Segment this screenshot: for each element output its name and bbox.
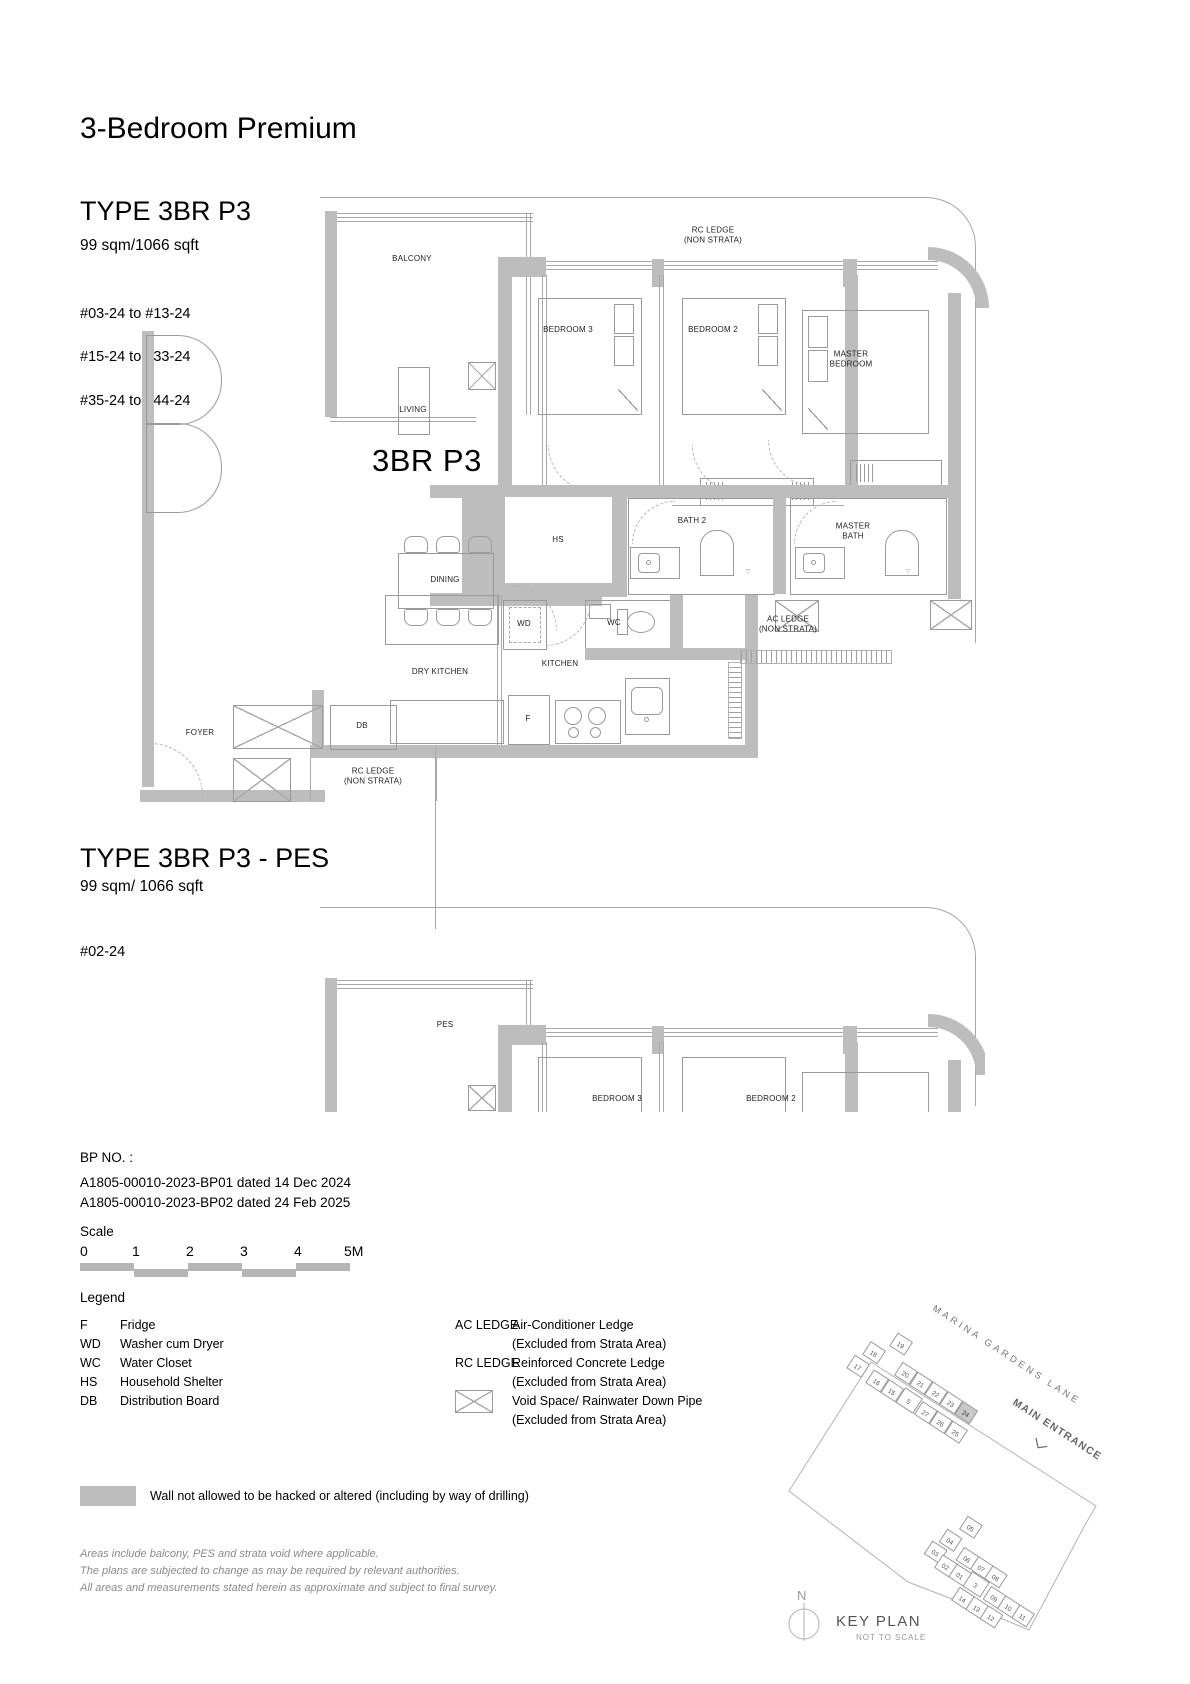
disclaimer-line: Areas include balcony, PES and strata vo… [80, 1548, 379, 1560]
room-label-living: LIVING [399, 405, 426, 415]
wall-segment [498, 257, 512, 497]
scale-tick: 1 [132, 1243, 140, 1259]
floor-trap-icon: ▽ [746, 569, 751, 577]
window-line [526, 980, 527, 1028]
page-title: 3-Bedroom Premium [80, 112, 357, 146]
wall-segment [498, 1025, 512, 1112]
blanket-fold [762, 389, 782, 411]
toilet-shape [627, 611, 655, 633]
chair-shape [404, 536, 428, 553]
room-label-rc-ledge-bottom: RC LEDGE (NON STRATA) [344, 767, 402, 788]
scale-tick: 5M [344, 1243, 363, 1259]
blanket-fold [618, 389, 638, 411]
counter-shape [390, 700, 504, 744]
scale-label: Scale [80, 1224, 114, 1239]
floor-plan-page: 3-Bedroom Premium TYPE 3BR P3 99 sqm/106… [0, 0, 1190, 1684]
wardrobe-hangers [856, 464, 874, 482]
legend-abbr: AC LEDGE [455, 1318, 518, 1332]
pillow-shape [758, 336, 778, 366]
window-line [546, 1036, 938, 1037]
hob-burner [590, 727, 601, 738]
partition-line [663, 1042, 664, 1112]
room-label-bedroom3: BEDROOM 3 [592, 1094, 642, 1104]
pillow-shape [808, 316, 828, 348]
floor-trap-icon: ▽ [906, 569, 911, 577]
wall-segment [773, 490, 786, 594]
chair-shape [468, 536, 492, 553]
blanket-fold [808, 408, 828, 430]
wall-segment [325, 978, 337, 1112]
bp-line: A1805-00010-2023-BP01 dated 14 Dec 2024 [80, 1175, 351, 1190]
basin-shape [589, 604, 611, 619]
chair-shape [404, 609, 428, 626]
legend-abbr: DB [80, 1394, 97, 1408]
void-space-icon [468, 362, 496, 390]
partition-line [663, 275, 664, 492]
shower-shape [885, 530, 919, 576]
window-line [337, 217, 533, 218]
disclaimer-line: All areas and measurements stated herein… [80, 1582, 497, 1594]
ledge-line [310, 758, 311, 801]
hob-burner [568, 727, 579, 738]
wall-note: Wall not allowed to be hacked or altered… [150, 1489, 529, 1503]
ledge-line [436, 758, 437, 801]
hob-shape [555, 700, 621, 744]
keyplan-title: KEY PLAN [836, 1613, 921, 1630]
scale-tick: 0 [80, 1243, 88, 1259]
tv-console-shape [398, 367, 430, 435]
void-space-icon [455, 1390, 493, 1413]
sofa-shape [146, 423, 222, 513]
window-line [546, 261, 938, 262]
partition-line [659, 275, 660, 492]
legend-abbr: WC [80, 1356, 101, 1370]
legend-abbr: RC LEDGE [455, 1356, 519, 1370]
legend-note: (Excluded from Strata Area) [512, 1375, 666, 1389]
type2-heading: TYPE 3BR P3 - PES [80, 843, 329, 874]
sink-drain [644, 717, 649, 722]
pillow-shape [614, 336, 634, 366]
bp-line: A1805-00010-2023-BP02 dated 24 Feb 2025 [80, 1195, 350, 1210]
void-space-icon [233, 705, 323, 749]
type2-units: #02-24 [80, 920, 125, 985]
wall-swatch [80, 1486, 136, 1506]
legend-desc: Water Closet [120, 1356, 192, 1370]
legend-desc: Washer cum Dryer [120, 1337, 224, 1351]
key-plan: MARINA GARDENS LANE MAIN ENTRANCE 19 18 … [740, 1222, 1190, 1642]
window-line [337, 988, 533, 989]
legend-note: (Excluded from Strata Area) [512, 1337, 666, 1351]
window-line [337, 221, 533, 222]
ac-ledge-hatch [728, 662, 742, 739]
void-space-icon [930, 600, 972, 630]
room-label-kitchen: KITCHEN [542, 659, 579, 669]
room-label-master-bedroom: MASTER BEDROOM [830, 350, 873, 371]
unit-block: 05 [960, 1516, 982, 1538]
street-label: MARINA GARDENS LANE [930, 1303, 1082, 1407]
legend-abbr: HS [80, 1375, 97, 1389]
window-line [530, 213, 531, 415]
window-line [526, 213, 527, 415]
unit-block: 17 [847, 1355, 869, 1377]
sink-drain [811, 560, 816, 565]
pillow-shape [758, 304, 778, 334]
legend-desc: Air-Conditioner Ledge [512, 1318, 634, 1332]
bp-label: BP NO. : [80, 1150, 133, 1165]
legend-desc: Distribution Board [120, 1394, 219, 1408]
scale-bar-segment [188, 1263, 242, 1271]
room-label-rc-ledge-top: RC LEDGE (NON STRATA) [684, 226, 742, 247]
floor-plan-3br-p3: BALCONY RC LEDGE (NON STRATA) [140, 195, 985, 807]
sofa-shape [146, 335, 222, 425]
unit-range: #02-24 [80, 942, 125, 964]
legend-abbr: WD [80, 1337, 101, 1351]
legend-desc: Void Space/ Rainwater Down Pipe [512, 1394, 702, 1408]
scale-bar-segment [296, 1263, 350, 1271]
window-line [546, 269, 938, 270]
window-line [530, 980, 531, 1028]
room-label-foyer: FOYER [186, 728, 215, 738]
shower-shape [700, 530, 734, 576]
scale-bar-segment [242, 1269, 296, 1277]
wall-segment [745, 595, 758, 753]
unit-block: 18 [863, 1342, 885, 1364]
room-label-dry-kitchen: DRY KITCHEN [412, 667, 468, 677]
void-space-icon [233, 758, 291, 802]
wall-segment [585, 648, 745, 660]
hob-burner [588, 707, 606, 725]
pillow-shape [808, 350, 828, 382]
room-label-fridge: F [525, 714, 530, 724]
scale-bar-segment [80, 1263, 134, 1271]
keyplan-subtitle: NOT TO SCALE [856, 1633, 926, 1642]
room-label-bath2: BATH 2 [678, 516, 707, 526]
scale-tick: 4 [294, 1243, 302, 1259]
window-line [337, 984, 533, 985]
window-line [546, 1028, 938, 1029]
partition-line [659, 1042, 660, 1112]
legend-label: Legend [80, 1290, 125, 1305]
legend-abbr: F [80, 1318, 88, 1332]
chair-shape [468, 609, 492, 626]
sink-shape [631, 687, 663, 715]
floor-plan-3br-p3-pes: PES BEDROOM 3 BEDROOM 2 [140, 900, 985, 1112]
room-label-bedroom2: BEDROOM 2 [746, 1094, 796, 1104]
scale-tick: 2 [186, 1243, 194, 1259]
room-label-dining: DINING [430, 575, 459, 585]
legend-desc: Fridge [120, 1318, 155, 1332]
lower-cluster: 05 04 03 06 07 08 02 01 3 09 10 11 14 13… [911, 1508, 1059, 1642]
room-label-bedroom2: BEDROOM 2 [688, 325, 738, 335]
window-line [337, 213, 533, 214]
wall-segment [948, 1060, 961, 1112]
disclaimer-line: The plans are subjected to change as may… [80, 1565, 460, 1577]
pillow-shape [614, 304, 634, 334]
chair-shape [436, 609, 460, 626]
void-space-icon [468, 1085, 496, 1111]
sink-drain [646, 560, 651, 565]
room-label-db: DB [356, 721, 368, 731]
window-line [546, 1032, 938, 1033]
entrance-arrow-icon [1032, 1438, 1048, 1451]
plan-big-label: 3BR P3 [372, 443, 482, 479]
unit-block: 19 [890, 1333, 912, 1355]
scale-bar-segment [134, 1269, 188, 1277]
scale-tick: 3 [240, 1243, 248, 1259]
bed-shape [802, 1072, 929, 1112]
room-label-bedroom3: BEDROOM 3 [543, 325, 593, 335]
chair-shape [436, 536, 460, 553]
door-arc [150, 743, 203, 796]
wall-segment [948, 293, 961, 599]
room-label-master-bath: MASTER BATH [836, 522, 871, 543]
type2-area: 99 sqm/ 1066 sqft [80, 878, 203, 896]
window-line [546, 265, 938, 266]
room-label-hs: HS [552, 535, 564, 545]
room-label-ac-ledge: AC LEDGE (NON STRATA) [759, 615, 817, 636]
legend-desc: Reinforced Concrete Ledge [512, 1356, 665, 1370]
legend-note: (Excluded from Strata Area) [512, 1413, 666, 1427]
main-entrance-label: MAIN ENTRANCE [1010, 1396, 1103, 1463]
room-label-balcony: BALCONY [392, 254, 432, 264]
window-line [337, 980, 533, 981]
room-label-pes: PES [437, 1020, 454, 1030]
wall-segment [325, 211, 337, 417]
legend-desc: Household Shelter [120, 1375, 223, 1389]
north-label: N [797, 1588, 806, 1603]
ac-ledge-hatch [740, 650, 892, 664]
room-label-wc: WC [607, 618, 621, 628]
hob-burner [564, 707, 582, 725]
